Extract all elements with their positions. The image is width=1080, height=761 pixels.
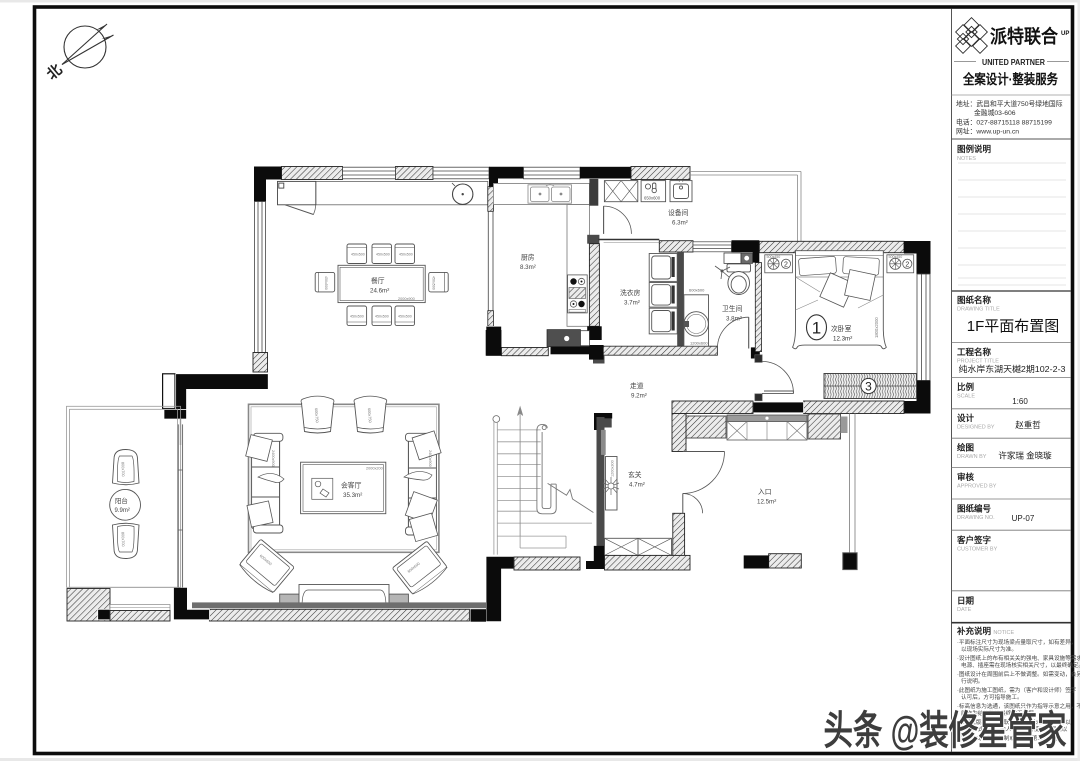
svg-text:会客厅: 会客厅 <box>341 481 362 490</box>
svg-text:认可后，方可指导施工。: 认可后，方可指导施工。 <box>961 693 1023 701</box>
svg-text:派特联合: 派特联合 <box>990 26 1058 47</box>
svg-text:电话：027-88715118 88715199: 电话：027-88715118 88715199 <box>956 118 1052 127</box>
svg-text:图纸名称: 图纸名称 <box>957 295 992 305</box>
svg-text:450x500: 450x500 <box>351 253 365 257</box>
svg-text:2: 2 <box>784 261 788 268</box>
svg-text:450x500: 450x500 <box>324 276 328 290</box>
svg-text:入口: 入口 <box>758 488 772 496</box>
svg-text:走道: 走道 <box>630 381 644 390</box>
svg-text:500x450: 500x450 <box>767 255 781 259</box>
svg-text:35.3m²: 35.3m² <box>343 492 362 499</box>
svg-text:UP-07: UP-07 <box>1012 514 1035 523</box>
svg-text:·平面标注尺寸为现场梁点量取尺寸，如有差异，: ·平面标注尺寸为现场梁点量取尺寸，如有差异， <box>957 638 1076 646</box>
svg-text:以现场实际尺寸为准。: 以现场实际尺寸为准。 <box>961 645 1017 653</box>
svg-text:·设计图纸上的布有相关关的强电、家具设施等需求的: ·设计图纸上的布有相关关的强电、家具设施等需求的 <box>957 654 1080 662</box>
svg-text:450x500: 450x500 <box>432 276 436 290</box>
svg-text:1F平面布置图: 1F平面布置图 <box>967 318 1060 335</box>
svg-text:图纸编号: 图纸编号 <box>957 504 992 514</box>
svg-text:3.8m²: 3.8m² <box>726 316 742 323</box>
svg-text:行说明。: 行说明。 <box>961 677 983 685</box>
svg-text:工程名称: 工程名称 <box>957 347 992 357</box>
svg-text:500x450: 500x450 <box>889 255 903 259</box>
svg-text:洗衣房: 洗衣房 <box>620 288 641 297</box>
svg-text:4.7m²: 4.7m² <box>629 482 645 489</box>
svg-text:12.5m²: 12.5m² <box>757 499 776 506</box>
svg-text:3: 3 <box>865 380 872 394</box>
svg-text:厨房: 厨房 <box>521 253 535 262</box>
svg-text:24.6m²: 24.6m² <box>370 288 389 295</box>
svg-text:DRAWING NO.: DRAWING NO. <box>957 515 995 521</box>
svg-text:玄关: 玄关 <box>628 470 642 479</box>
svg-text:DRAWN BY: DRAWN BY <box>957 454 987 460</box>
svg-text:纯水岸东湖天樾2期102-2-3: 纯水岸东湖天樾2期102-2-3 <box>959 364 1066 374</box>
svg-text:客户签字: 客户签字 <box>956 535 992 545</box>
svg-text:8.3m²: 8.3m² <box>520 264 536 271</box>
svg-text:日期: 日期 <box>957 596 975 606</box>
svg-text:2000x900: 2000x900 <box>398 297 415 301</box>
svg-text:650x600: 650x600 <box>644 196 661 201</box>
svg-text:9.2m²: 9.2m² <box>631 393 647 400</box>
svg-text:1800x2000: 1800x2000 <box>874 317 879 338</box>
svg-text:卫生间: 卫生间 <box>722 304 743 313</box>
svg-text:1200x300: 1200x300 <box>611 460 615 477</box>
svg-text:头条 @装修星管家: 头条 @装修星管家 <box>824 709 1067 753</box>
svg-text:网址：www.up-un.cn: 网址：www.up-un.cn <box>956 127 1019 136</box>
svg-text:450x500: 450x500 <box>375 315 389 319</box>
svg-text:设计: 设计 <box>957 413 975 423</box>
svg-text:阳台: 阳台 <box>115 496 128 505</box>
svg-text:3.7m²: 3.7m² <box>624 300 640 307</box>
svg-text:1:60: 1:60 <box>1012 397 1028 406</box>
svg-text:450x500: 450x500 <box>398 315 412 319</box>
svg-text:DATE: DATE <box>957 607 972 613</box>
svg-text:800x700: 800x700 <box>121 532 126 547</box>
svg-text:1200x600: 1200x600 <box>690 341 708 346</box>
svg-text:·图纸设计在周围前后上不做调整。如需变动，会另: ·图纸设计在周围前后上不做调整。如需变动，会另 <box>957 670 1080 678</box>
svg-text:9.9m²: 9.9m² <box>115 508 130 514</box>
svg-text:设备间: 设备间 <box>668 208 689 217</box>
svg-text:450x500: 450x500 <box>350 315 364 319</box>
svg-text:CUSTOMER BY: CUSTOMER BY <box>957 547 998 553</box>
svg-text:DRAWING TITLE: DRAWING TITLE <box>957 307 1000 313</box>
svg-text:NOTES: NOTES <box>957 156 976 162</box>
svg-text:12.3m²: 12.3m² <box>833 336 852 343</box>
svg-text:SCALE: SCALE <box>957 394 975 400</box>
svg-text:餐厅: 餐厅 <box>371 276 385 285</box>
svg-text:绘图: 绘图 <box>957 443 974 453</box>
svg-text:许家瑞 金晓璇: 许家瑞 金晓璇 <box>998 451 1052 461</box>
svg-text:次卧室: 次卧室 <box>831 324 852 333</box>
svg-text:600x600: 600x600 <box>689 288 705 293</box>
svg-text:2400x900: 2400x900 <box>271 450 275 467</box>
svg-text:图例说明: 图例说明 <box>957 144 992 154</box>
svg-text:6.3m²: 6.3m² <box>672 220 688 227</box>
svg-text:2: 2 <box>905 261 909 268</box>
svg-text:2000x200: 2000x200 <box>366 467 383 471</box>
svg-text:审核: 审核 <box>957 472 975 482</box>
svg-text:2400x900: 2400x900 <box>428 450 432 467</box>
svg-text:地址：武昌和平大道750号绿地国际: 地址：武昌和平大道750号绿地国际 <box>956 99 1063 108</box>
svg-text:UP: UP <box>1061 31 1069 37</box>
svg-text:·此图纸为施工图纸，需为（客户和设计师）签字: ·此图纸为施工图纸，需为（客户和设计师）签字 <box>957 686 1077 694</box>
svg-text:800x700: 800x700 <box>121 462 126 477</box>
svg-text:450x500: 450x500 <box>399 253 413 257</box>
svg-text:比例: 比例 <box>957 382 975 392</box>
svg-text:金融城03-606: 金融城03-606 <box>974 108 1016 117</box>
svg-text:电源、插座需在现场核实相关尺寸，以最终确定。: 电源、插座需在现场核实相关尺寸，以最终确定。 <box>961 661 1080 669</box>
svg-text:DESIGNED BY: DESIGNED BY <box>957 425 995 431</box>
svg-text:全案设计·整装服务: 全案设计·整装服务 <box>962 71 1058 87</box>
svg-text:APPROVED BY: APPROVED BY <box>957 484 997 490</box>
svg-text:UNITED PARTNER: UNITED PARTNER <box>982 57 1046 67</box>
svg-text:1: 1 <box>812 319 821 338</box>
svg-text:赵重哲: 赵重哲 <box>1015 420 1041 430</box>
svg-text:450x500: 450x500 <box>376 253 390 257</box>
